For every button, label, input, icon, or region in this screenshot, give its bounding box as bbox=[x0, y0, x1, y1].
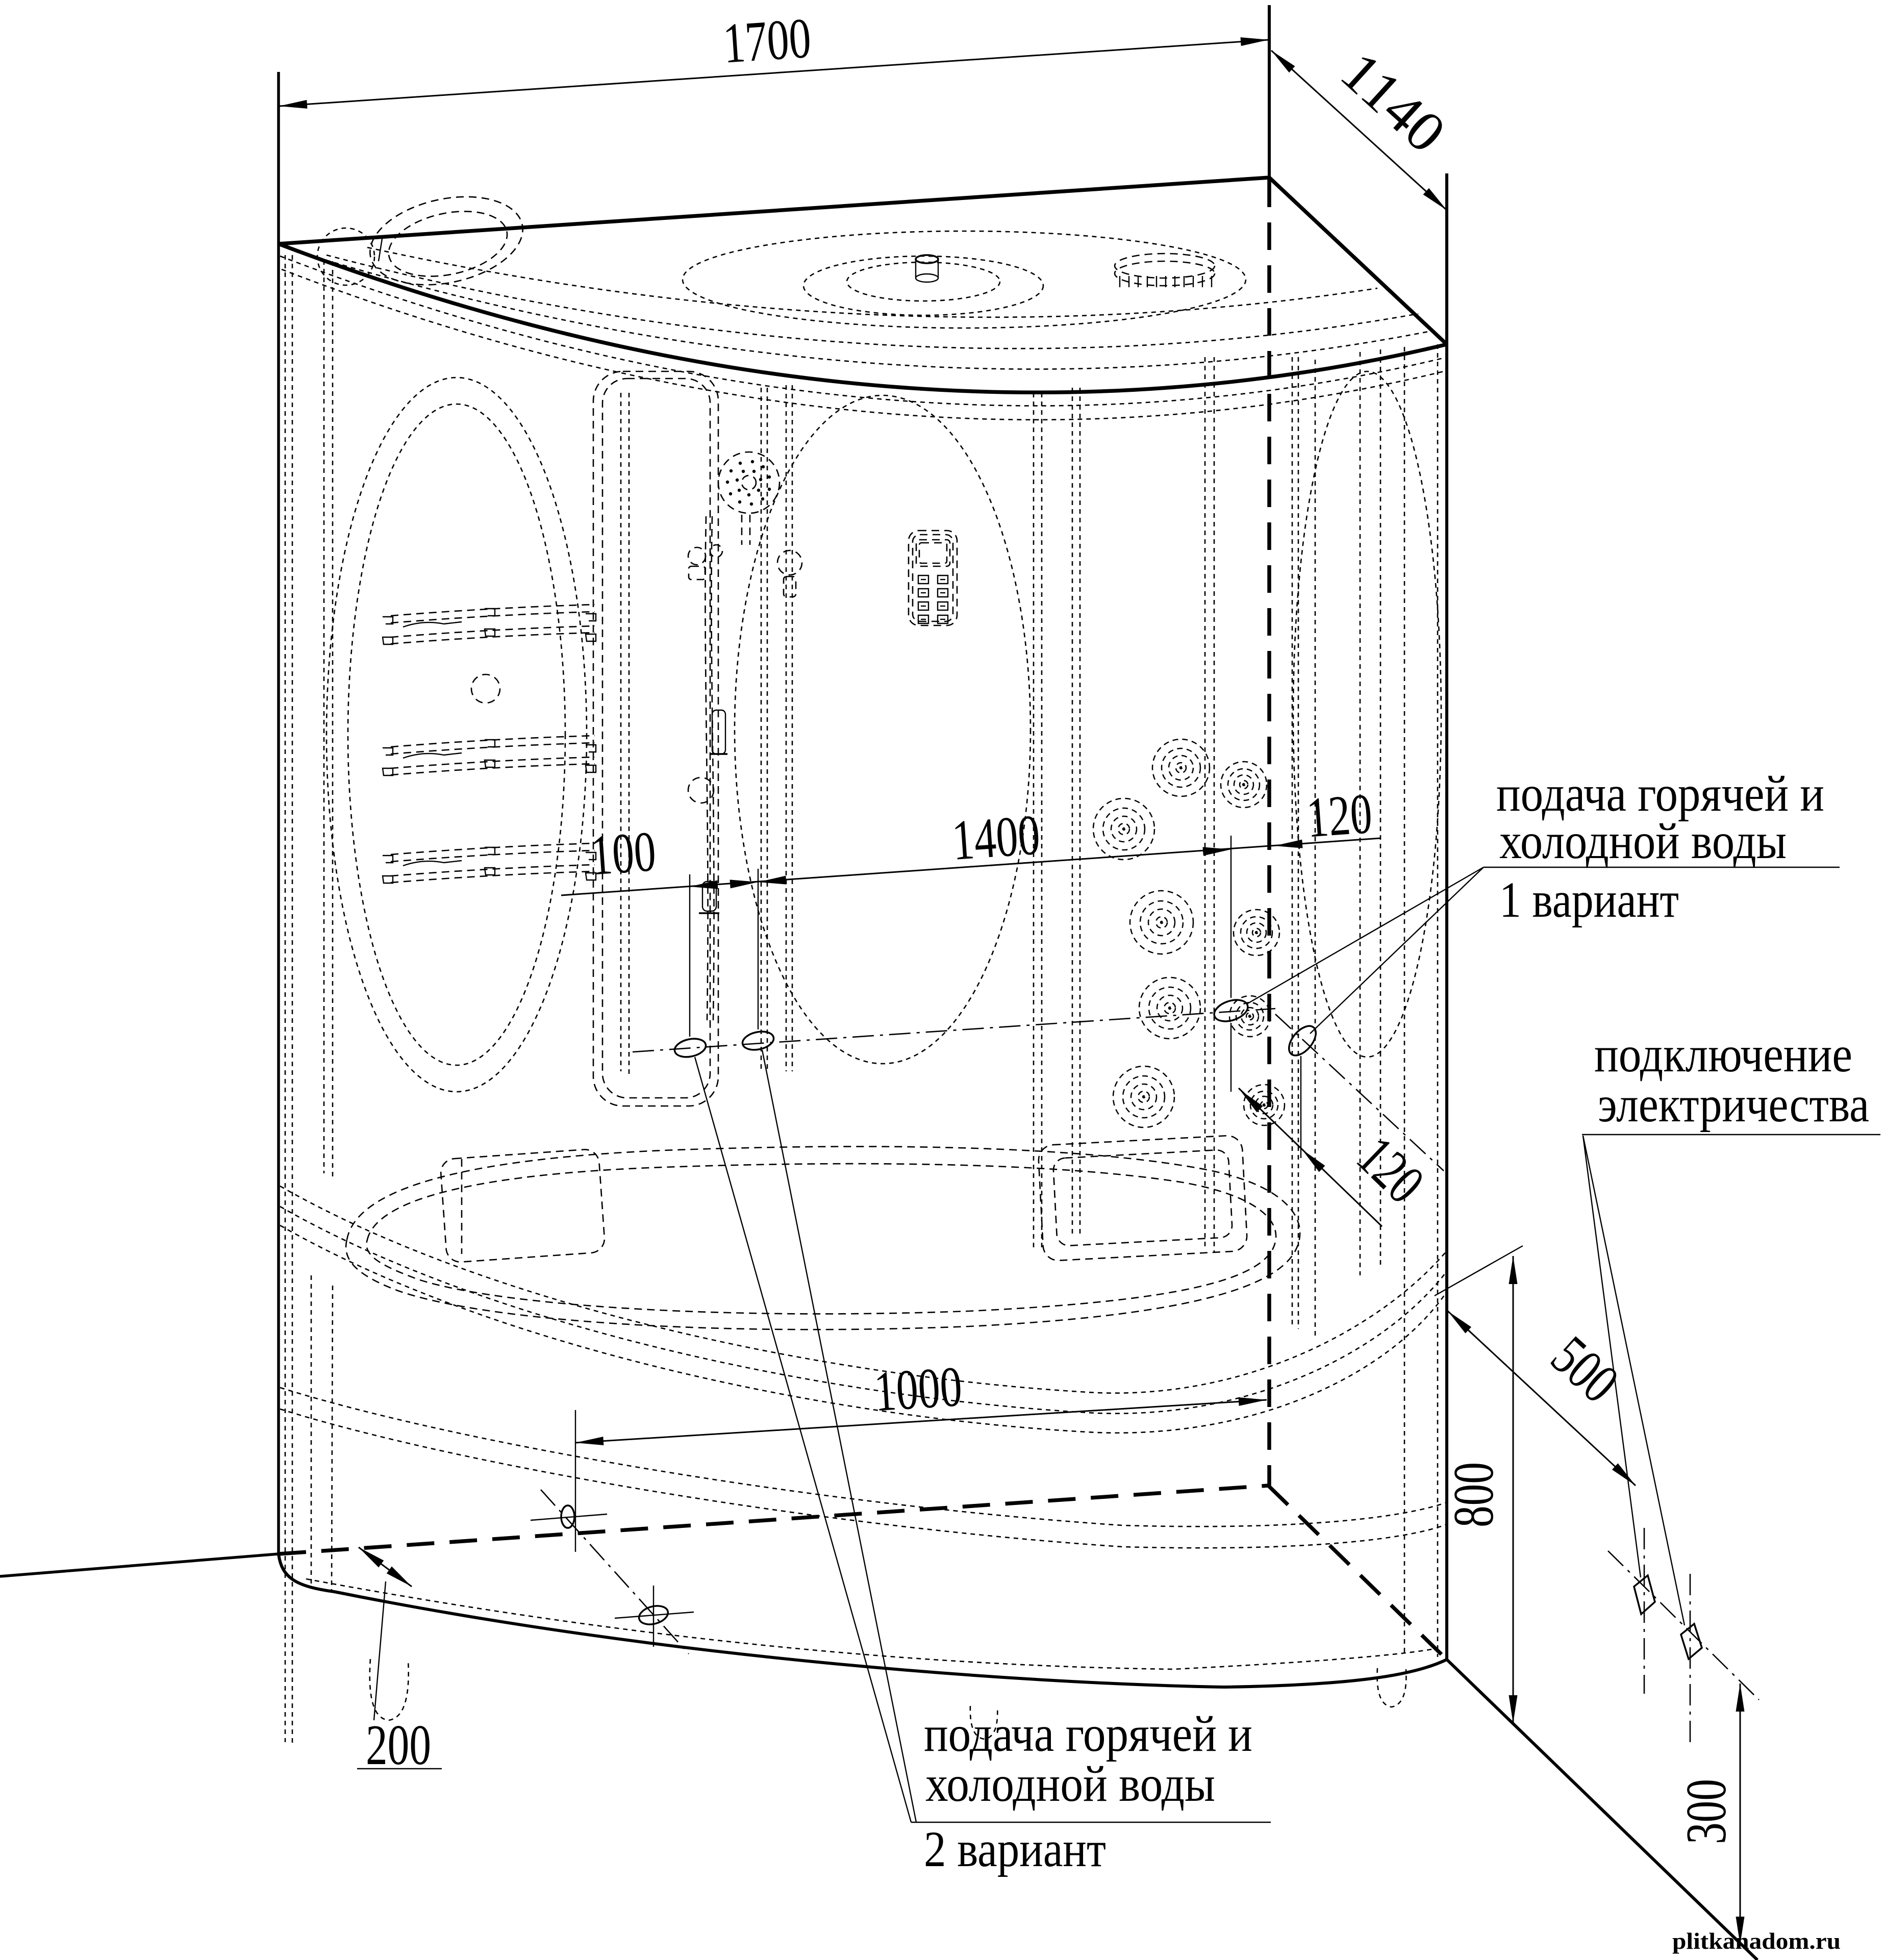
svg-text:1000: 1000 bbox=[872, 1355, 964, 1424]
svg-text:холодной воды: холодной воды bbox=[925, 1755, 1215, 1812]
svg-text:120: 120 bbox=[1304, 782, 1374, 850]
svg-text:800: 800 bbox=[1442, 1462, 1505, 1527]
svg-text:100: 100 bbox=[588, 820, 658, 888]
svg-text:2 вариант: 2 вариант bbox=[924, 1821, 1106, 1877]
svg-text:1 вариант: 1 вариант bbox=[1499, 871, 1679, 928]
svg-text:plitkanadom.ru: plitkanadom.ru bbox=[1672, 1928, 1841, 1954]
svg-text:200: 200 bbox=[366, 1714, 431, 1777]
svg-text:подключение: подключение bbox=[1594, 1026, 1852, 1083]
svg-text:холодной воды: холодной воды bbox=[1499, 813, 1787, 869]
svg-text:1400: 1400 bbox=[950, 803, 1042, 872]
svg-text:электричества: электричества bbox=[1598, 1076, 1869, 1133]
svg-text:1700: 1700 bbox=[721, 7, 813, 76]
svg-text:300: 300 bbox=[1675, 1779, 1738, 1844]
svg-text:подача горячей и: подача горячей и bbox=[924, 1705, 1252, 1762]
